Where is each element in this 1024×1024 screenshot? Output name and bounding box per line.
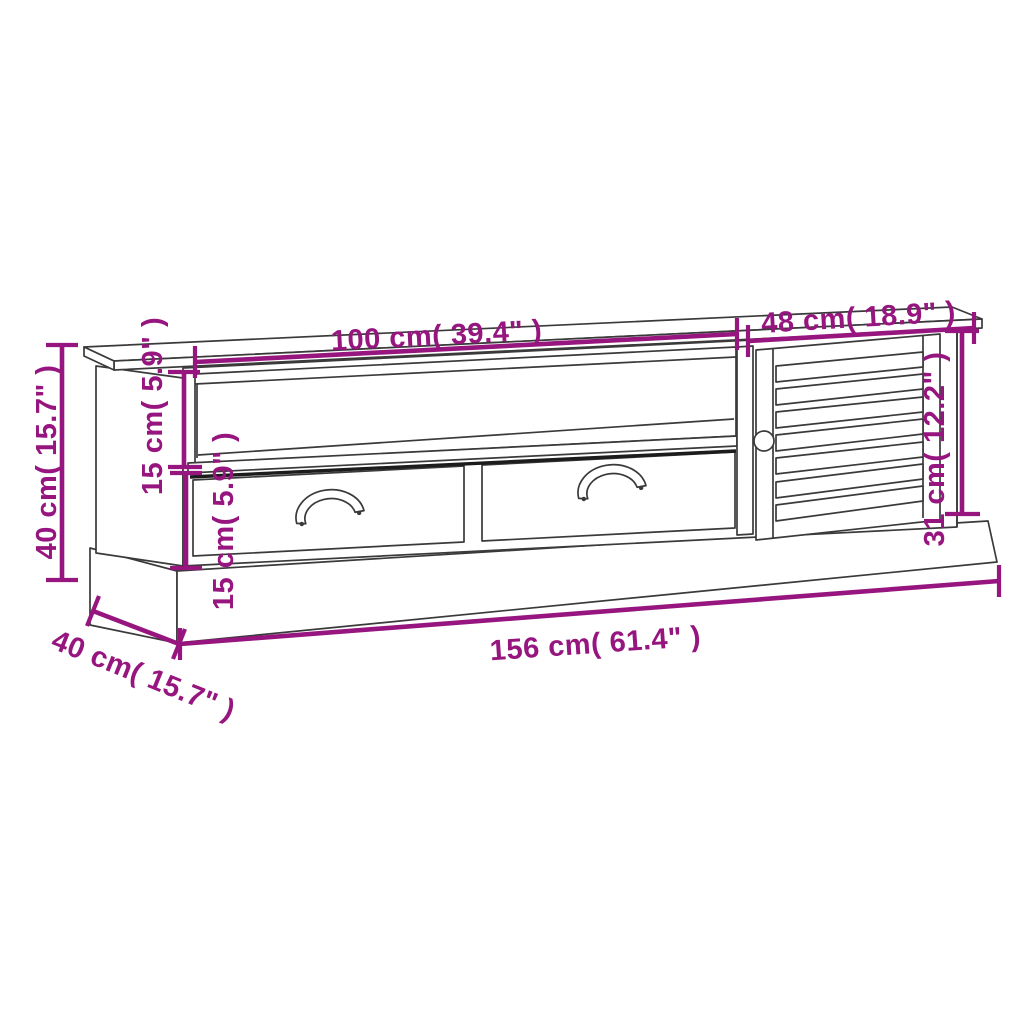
label-shelf-opening-height: 15 cm( 5.9" ): [137, 317, 169, 495]
center-divider-post: [737, 346, 753, 535]
door-knob: [754, 431, 774, 451]
label-overall-height: 40 cm( 15.7" ): [31, 365, 63, 560]
label-overall-width: 156 cm( 61.4" ): [489, 621, 702, 668]
product-dimension-diagram: 100 cm( 39.4" ) 48 cm( 18.9" ) 40 cm( 15…: [0, 0, 1024, 1024]
label-drawer-section-height: 15 cm( 5.9" ): [208, 432, 240, 610]
label-door-height: 31 cm( 12.2" ): [919, 352, 951, 547]
